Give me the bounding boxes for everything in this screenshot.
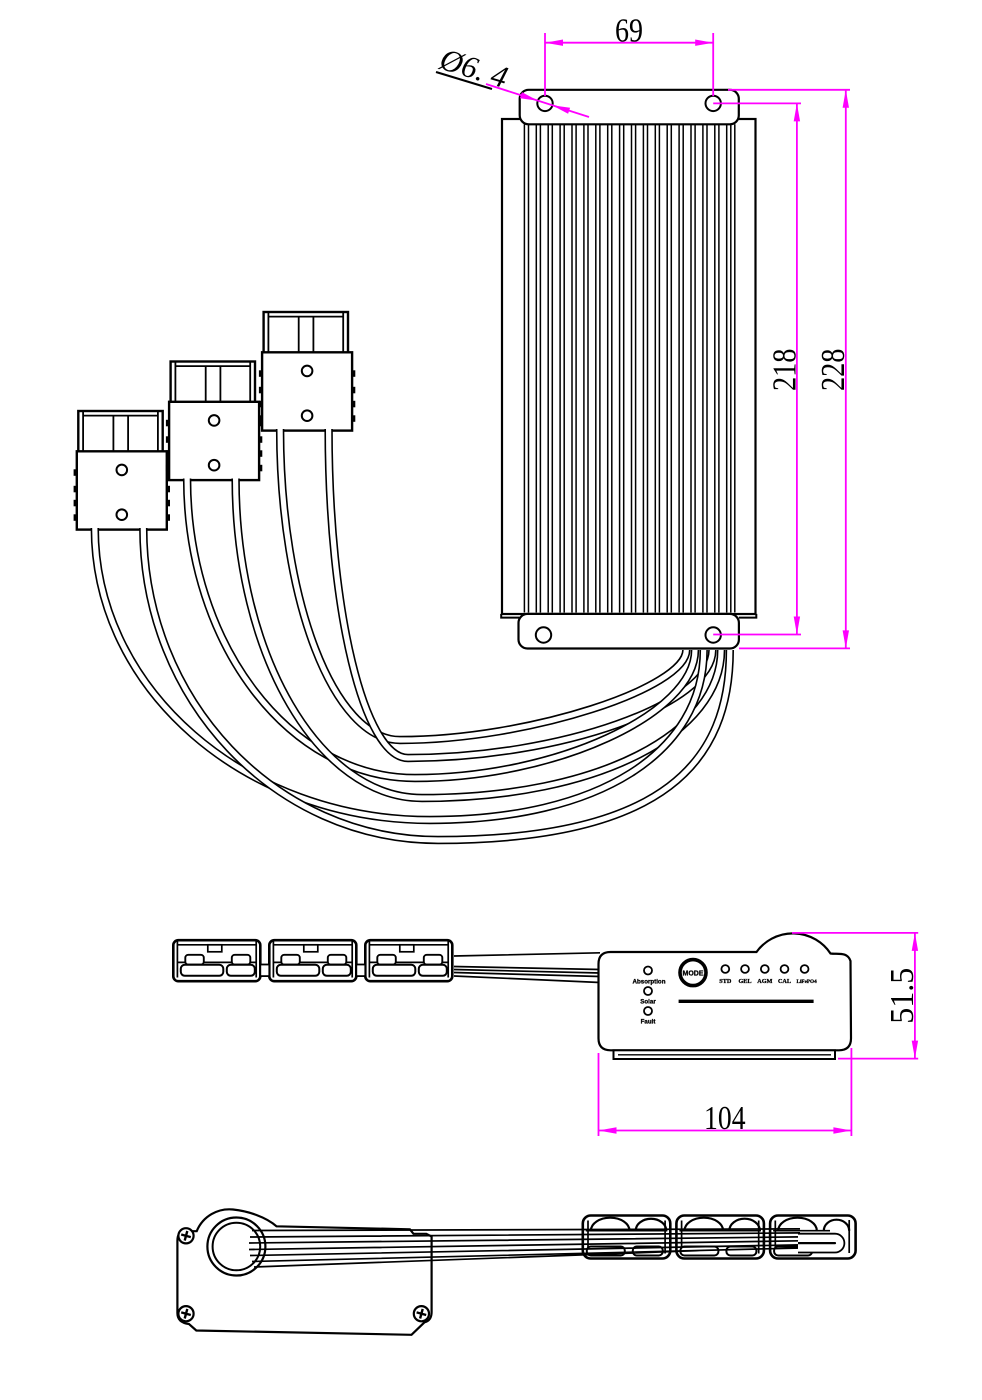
svg-text:CAL: CAL: [778, 978, 791, 985]
svg-text:STD: STD: [719, 978, 732, 985]
svg-text:MODE: MODE: [683, 970, 704, 977]
svg-text:51.5: 51.5: [884, 968, 921, 1024]
svg-text:104: 104: [704, 1100, 746, 1137]
svg-text:AGM: AGM: [757, 978, 772, 985]
svg-text:Fault: Fault: [641, 1019, 656, 1026]
svg-text:GEL: GEL: [738, 978, 751, 985]
svg-text:Solar: Solar: [640, 999, 656, 1006]
svg-text:69: 69: [615, 12, 643, 49]
svg-text:218: 218: [767, 349, 804, 392]
svg-text:Absorption: Absorption: [633, 979, 666, 986]
svg-text:LiFePO4: LiFePO4: [797, 979, 818, 985]
svg-text:228: 228: [815, 349, 852, 392]
